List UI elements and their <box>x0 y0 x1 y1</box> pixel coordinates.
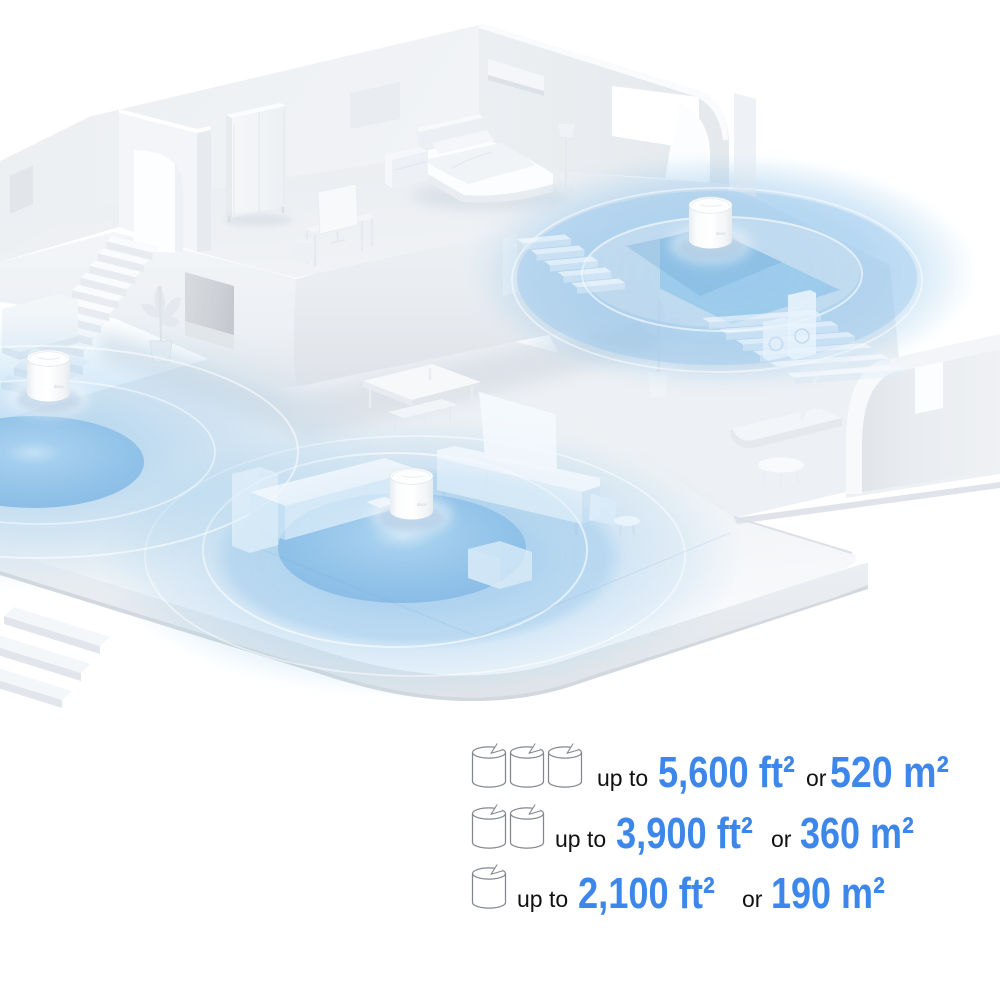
svg-text:or: or <box>742 886 763 912</box>
svg-text:deco: deco <box>417 502 427 507</box>
svg-text:deco: deco <box>716 231 726 236</box>
svg-text:or: or <box>771 826 792 852</box>
svg-text:up to: up to <box>597 765 648 791</box>
svg-text:or: or <box>806 765 827 791</box>
svg-text:5,600 ft²: 5,600 ft² <box>658 748 795 797</box>
svg-text:520 m²: 520 m² <box>830 748 949 797</box>
svg-text:3,900 ft²: 3,900 ft² <box>616 809 753 858</box>
svg-text:360 m²: 360 m² <box>800 809 914 858</box>
svg-text:2,100 ft²: 2,100 ft² <box>578 869 715 918</box>
svg-text:up to: up to <box>517 886 568 912</box>
svg-text:190 m²: 190 m² <box>771 869 885 918</box>
svg-text:deco: deco <box>54 384 64 389</box>
svg-text:up to: up to <box>555 826 606 852</box>
